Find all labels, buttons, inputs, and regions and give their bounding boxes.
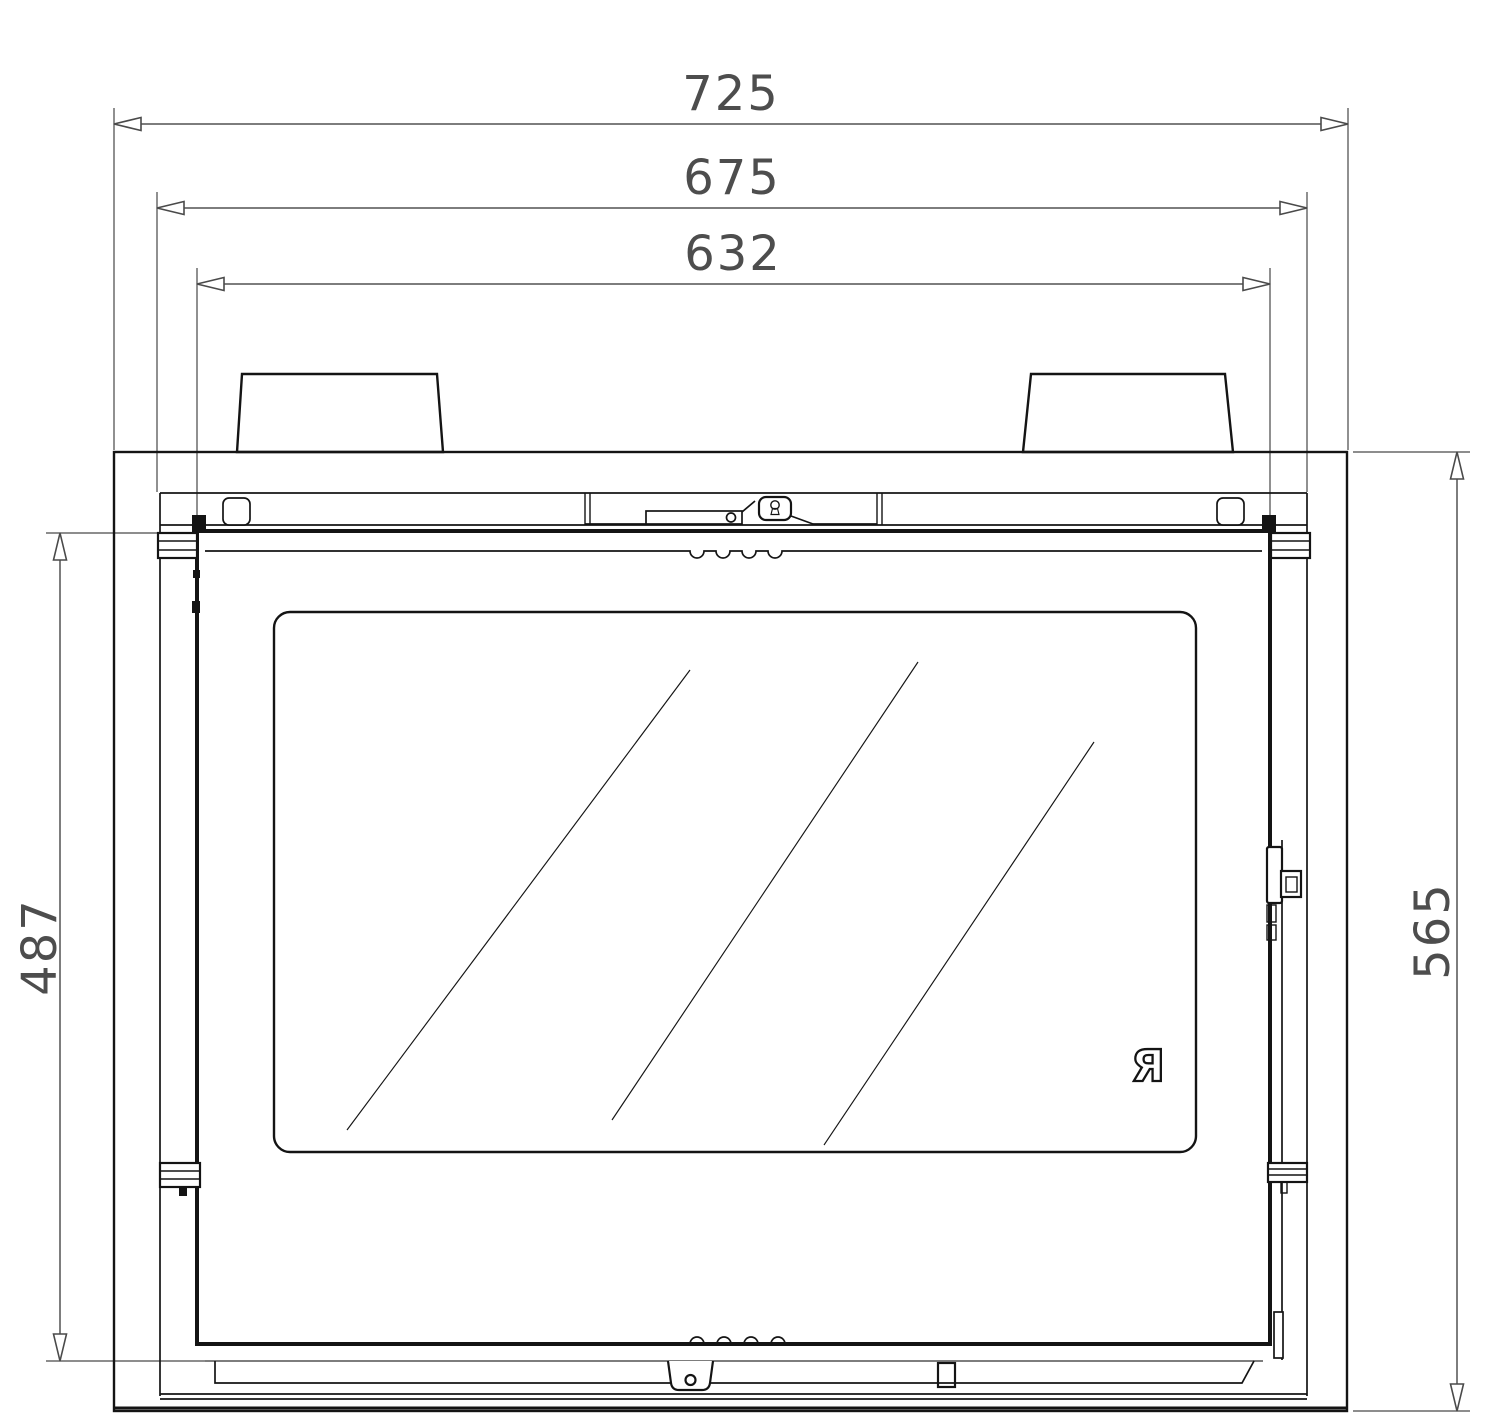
handle-plate: [1267, 847, 1282, 903]
door-screw: [192, 601, 200, 613]
dimension-label: 675: [683, 150, 781, 206]
top-vent-left: [237, 374, 443, 452]
reflection-line-2: [612, 662, 918, 1120]
dimension-label: 487: [12, 898, 68, 996]
arrowhead-up-icon: [1451, 452, 1464, 479]
glass-outline: [274, 612, 1196, 1152]
door-handle: [1267, 847, 1301, 940]
hinge-mid-left: [160, 1163, 200, 1196]
drawing-canvas: 725 675 632 487 565: [0, 0, 1500, 1427]
arrowhead-left-icon: [197, 278, 224, 291]
bottom-section: [114, 1361, 1347, 1408]
band-tab-right: [1217, 498, 1244, 525]
ash-lip-recess: [215, 1361, 1254, 1383]
hinge-bracket: [158, 533, 197, 558]
top-vent-right: [1023, 374, 1233, 452]
dimension-frame-width: 675: [157, 150, 1307, 492]
latch-link: [791, 516, 813, 524]
dimension-label: 565: [1405, 882, 1461, 980]
arrowhead-right-icon: [1243, 278, 1270, 291]
arrowhead-right-icon: [1280, 202, 1307, 215]
reflection-line-3: [824, 742, 1094, 1145]
handle-knob: [1281, 871, 1301, 897]
latch-link: [742, 501, 755, 512]
door-latch: [585, 497, 877, 524]
arrowhead-up-icon: [54, 533, 67, 560]
dimension-label: 725: [682, 66, 780, 122]
latch-lever: [646, 511, 742, 524]
hinge-bracket: [1271, 533, 1310, 558]
glass-panel: Я: [274, 612, 1196, 1152]
hinge-pin: [1262, 515, 1276, 532]
door-gasket-top: [205, 551, 1262, 558]
dimension-door-height: 487: [12, 533, 212, 1361]
hinge-pin: [179, 1187, 187, 1196]
hinge-pin: [192, 515, 206, 532]
arrowhead-right-icon: [1321, 118, 1348, 131]
arrowhead-down-icon: [54, 1334, 67, 1361]
arrowhead-left-icon: [157, 202, 184, 215]
hinge-bracket: [160, 1163, 200, 1187]
dimension-label: 632: [684, 226, 782, 282]
dimension-door-width: 632: [197, 226, 1270, 528]
hinge-mid-right: [1268, 1163, 1307, 1358]
door-edge-plate: [1274, 1312, 1283, 1358]
brand-logo: Я: [1131, 1041, 1165, 1092]
arrowhead-left-icon: [114, 118, 141, 131]
arrowhead-down-icon: [1451, 1384, 1464, 1411]
hinge-bracket: [1268, 1163, 1307, 1182]
reflection-line-1: [347, 670, 690, 1130]
door-screw: [193, 570, 200, 578]
casing-outline: [114, 452, 1347, 1411]
technical-drawing: 725 675 632 487 565: [0, 0, 1500, 1427]
stove-door: [197, 531, 1282, 1360]
dimension-overall-height: 565: [1353, 452, 1470, 1411]
band-tab-left: [223, 498, 250, 525]
